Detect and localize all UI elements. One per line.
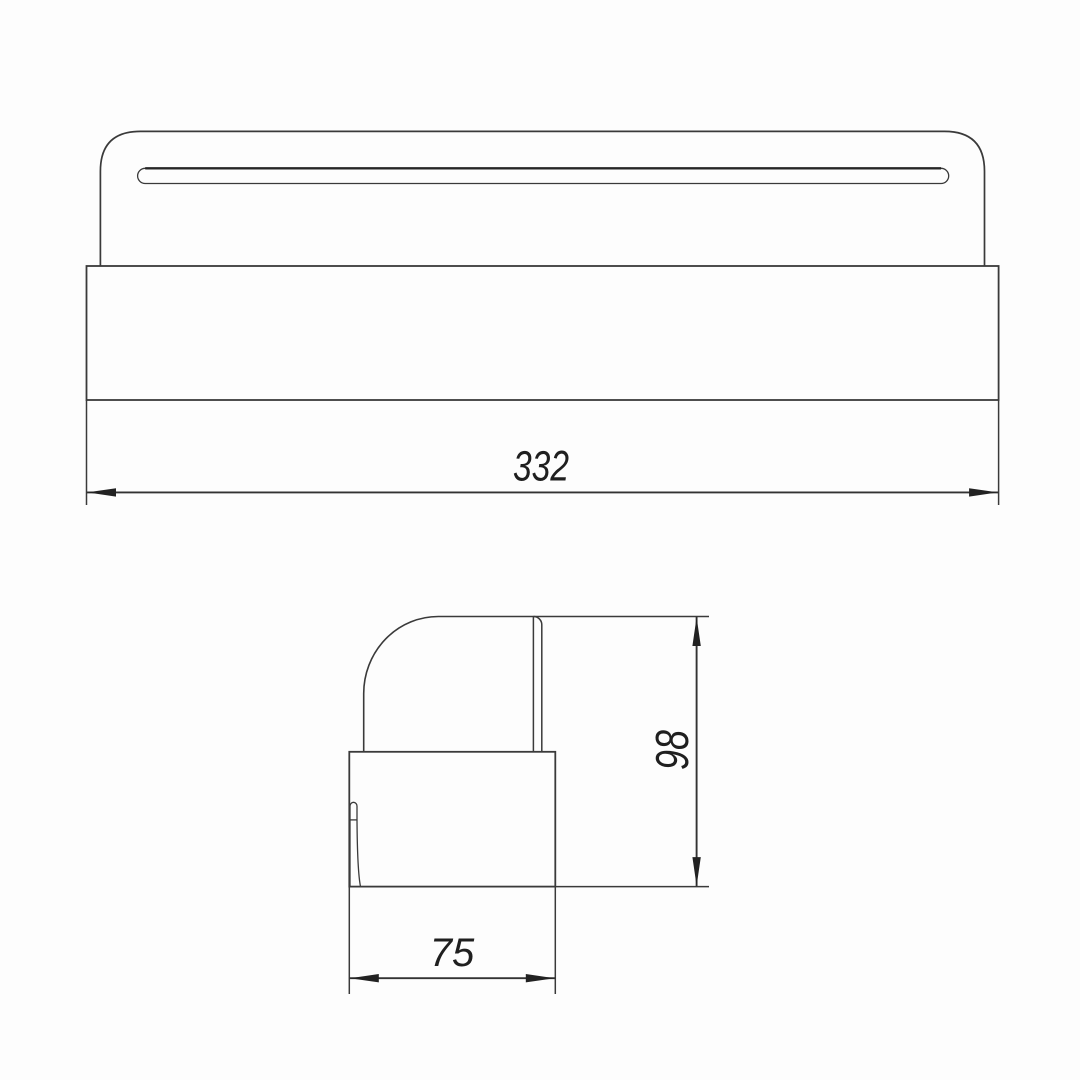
svg-text:75: 75	[430, 931, 475, 975]
svg-text:98: 98	[647, 730, 698, 770]
svg-text:332: 332	[513, 443, 569, 491]
